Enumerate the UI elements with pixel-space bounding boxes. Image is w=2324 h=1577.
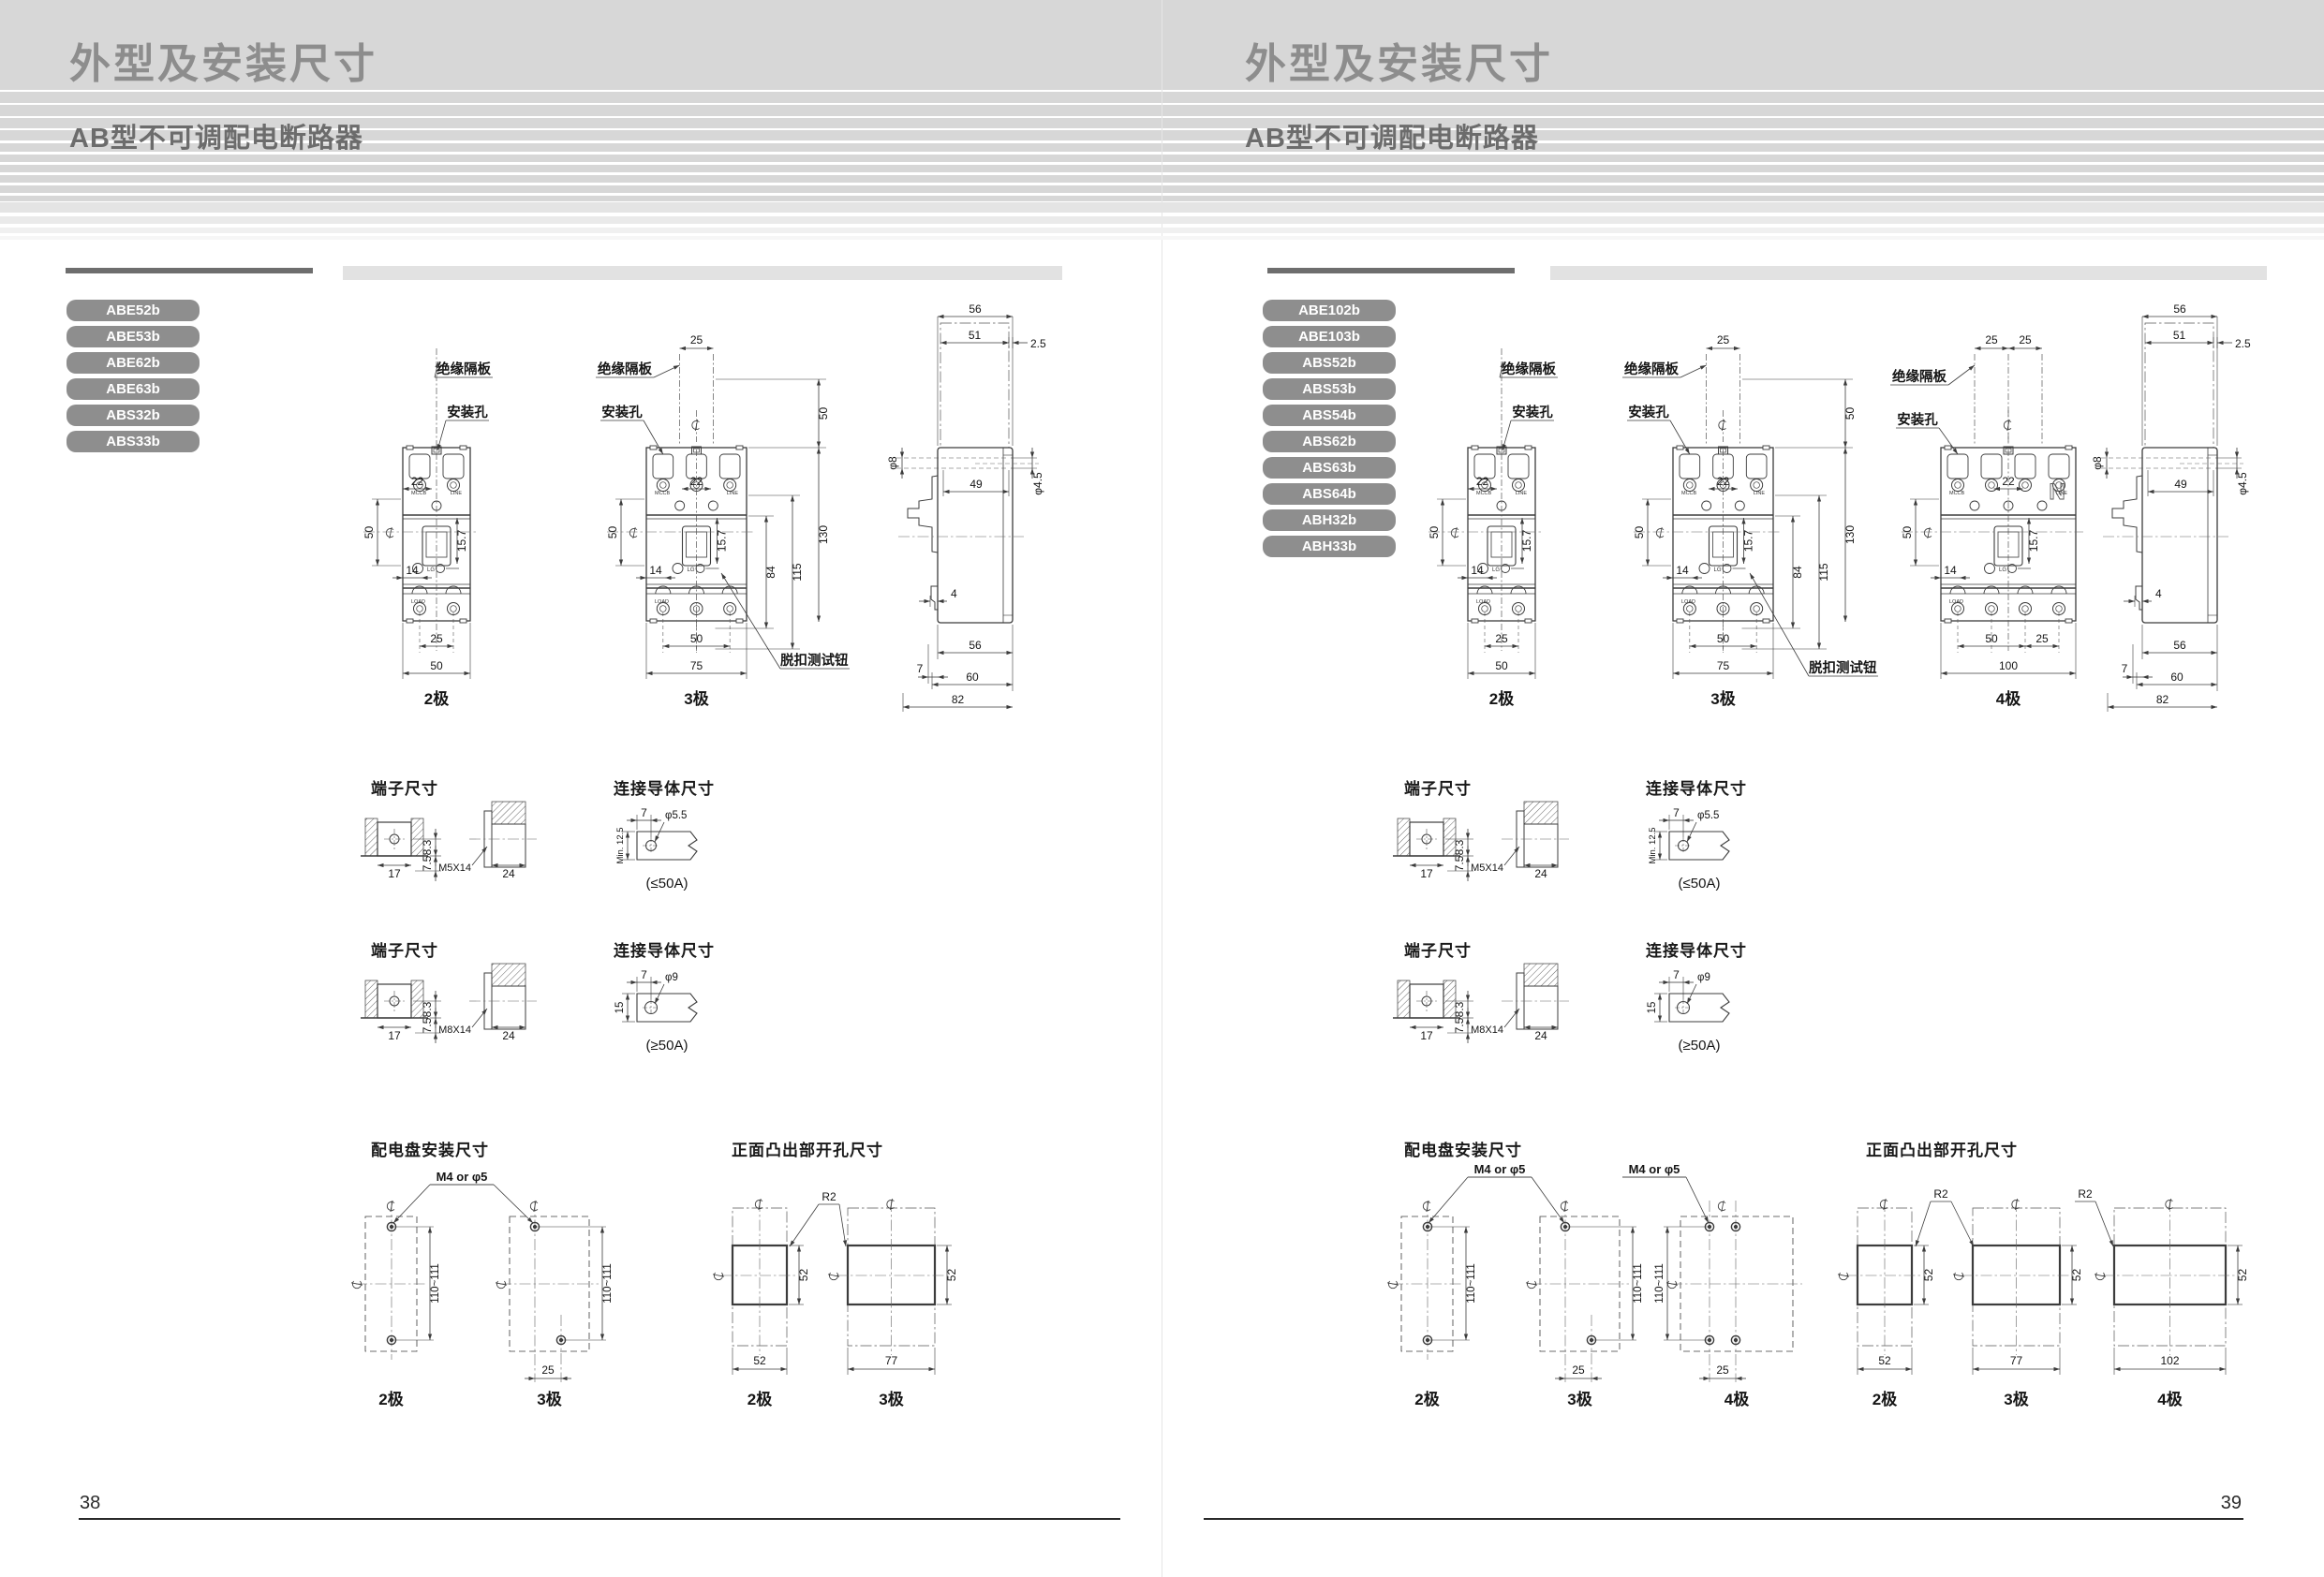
model-badge: ABE102b (1263, 300, 1396, 321)
front-view-3p: MCCBLINELOADLG15.72250142550753极50841151… (1622, 333, 1857, 708)
trip_test-label: 脱扣测试钮 (1809, 659, 1877, 676)
line-label: LINE (1754, 491, 1766, 496)
page-subtitle: AB型不可调配电断路器 (1245, 116, 1539, 155)
model-badge: ABS33b (67, 431, 200, 452)
phi55-label: φ5.5 (665, 810, 687, 821)
t56-label: 56 (969, 302, 982, 316)
phi8-label: φ8 (2091, 456, 2104, 470)
h75-label: 7.5 (421, 855, 434, 871)
b60-label: 60 (966, 671, 979, 684)
d50-label: 50 (1901, 526, 1914, 539)
header-stripe (0, 202, 2324, 213)
terminal-title-2: 端子尺寸 (1404, 937, 1472, 961)
conductor-detail-1: 7φ5.5Min. 12.5(≤50A) (615, 806, 697, 892)
le-label: (≤50A) (1679, 876, 1721, 892)
pole4-label: 4极 (1996, 690, 2021, 708)
conductor-detail-2: 7φ915(≥50A) (614, 968, 697, 1054)
model-badge: ABS32b (67, 405, 200, 426)
m5-label: M5X14 (438, 862, 471, 874)
header-stripe (0, 216, 2324, 224)
r84-label: 84 (764, 566, 777, 579)
d14-label: 14 (406, 564, 419, 577)
mount_hole-label: 安装孔 (601, 404, 643, 420)
d14-label: 14 (649, 564, 662, 577)
page-title: 外型及安装尺寸 (69, 30, 377, 90)
r115-label: 115 (1817, 563, 1830, 581)
r2-label: R2 (2078, 1187, 2093, 1201)
pole3-label: 3极 (879, 1391, 903, 1408)
d24-label: 24 (1534, 867, 1547, 880)
v-label: 110~111 (430, 1263, 441, 1304)
panel-mount-3p: 110~111253极 (496, 1201, 614, 1408)
insulation-label: 绝缘隔板 (598, 361, 652, 377)
terminal-title-2: 端子尺寸 (371, 937, 438, 961)
b50-label: 50 (690, 632, 703, 645)
cutout-2p: 52522极 (713, 1199, 810, 1408)
pole2-label: 2极 (748, 1391, 772, 1408)
d4-label: 4 (2155, 587, 2162, 600)
v-label: 110~111 (1633, 1263, 1644, 1304)
pole4-label: 4极 (2157, 1391, 2182, 1408)
d14-label: 14 (1676, 564, 1689, 577)
pole3-label: 3极 (1567, 1391, 1591, 1408)
mount_hole-label: 安装孔 (1512, 404, 1553, 420)
load-label: LOAD (655, 599, 669, 605)
p25b-label: 25 (2019, 333, 2032, 346)
d7-label: 7 (1673, 968, 1680, 981)
cutout-title: 正面凸出部开孔尺寸 (732, 1137, 883, 1160)
model-badge: ABS54b (1263, 405, 1396, 426)
header-stripe (0, 236, 2324, 240)
b82-label: 82 (952, 693, 965, 706)
cutout-3p: 52773极 (1953, 1199, 2083, 1408)
panel-mount-3p: 110~111253极 (1526, 1201, 1644, 1408)
model-badge: ABH32b (1263, 509, 1396, 531)
pole2-label: 2极 (1489, 690, 1514, 708)
d157-label: 15.7 (716, 529, 729, 552)
terminal-title-1: 端子尺寸 (1404, 775, 1472, 799)
model-badge: ABE52b (67, 300, 200, 321)
r84-label: 84 (1791, 566, 1804, 579)
model-list: ABE102bABE103bABS52bABS53bABS54bABS62bAB… (1263, 300, 1396, 562)
r2-label: R2 (1933, 1187, 1948, 1201)
header-stripe (0, 228, 2324, 233)
conductor-title-1: 连接导体尺寸 (614, 775, 715, 799)
v-label: 110~111 (1654, 1263, 1665, 1304)
front-view-3p: MCCBLINELOADLG15.72250142550753极50841151… (596, 333, 830, 708)
pole2-label: 2极 (1414, 1391, 1439, 1408)
line-label: LINE (2056, 491, 2068, 496)
v-label: 110~111 (602, 1263, 614, 1304)
front-view-2p: MCCBLINELOADLG15.722501425502极绝缘隔板安装孔 (363, 348, 493, 708)
m5-label: M5X14 (1471, 862, 1503, 874)
w75-label: 75 (690, 659, 703, 672)
b82-label: 82 (2156, 693, 2169, 706)
model-badge: ABH33b (1263, 536, 1396, 557)
b50b-label: 50 (1985, 632, 1998, 645)
h52-label: 52 (2070, 1269, 2083, 1282)
pole3-label: 3极 (1710, 690, 1735, 708)
d50-label: 50 (606, 526, 619, 539)
mccb-label: MCCB (1476, 491, 1492, 496)
d157-label: 15.7 (455, 529, 468, 552)
d14-label: 14 (1944, 564, 1957, 577)
page-subtitle: AB型不可调配电断路器 (69, 116, 363, 155)
load-label: LOAD (1476, 599, 1490, 605)
m8-label: M8X14 (438, 1024, 471, 1036)
w17-label: 17 (388, 867, 401, 880)
section-band (343, 266, 1062, 280)
phi9-label: φ9 (1697, 972, 1710, 983)
min125-label: Min. 12.5 (615, 827, 626, 863)
conductor-title-2: 连接导体尺寸 (1646, 937, 1747, 961)
pole2-label: 2极 (378, 1391, 403, 1408)
d49-label: 49 (970, 478, 983, 491)
r2-label: R2 (822, 1190, 836, 1203)
d22-label: 22 (1476, 475, 1489, 488)
lg-label: LG (1492, 567, 1500, 573)
mccb-label: MCCB (1949, 491, 1965, 496)
conductor-title-2: 连接导体尺寸 (614, 937, 715, 961)
t25-label: 2.5 (1030, 337, 1046, 350)
terminal-detail-2: 178.37.5M8X1424 (361, 964, 537, 1043)
d7-label: 7 (641, 968, 647, 981)
w77-label: 77 (2010, 1354, 2023, 1367)
panel-mount-2p: 110~1112极 (1387, 1201, 1477, 1408)
load-label: LOAD (1681, 599, 1695, 605)
w52-label: 52 (1878, 1354, 1891, 1367)
d7-label: 7 (1673, 806, 1680, 819)
w52-label: 52 (753, 1354, 766, 1367)
h83-label: 8.3 (421, 839, 434, 855)
terminal-detail-1: 178.37.5M5X1424 (361, 802, 537, 881)
p25-label: 25 (690, 333, 703, 346)
phi45-label: φ4.5 (2236, 472, 2249, 495)
line-label: LINE (727, 491, 739, 496)
b60-label: 60 (2170, 671, 2183, 684)
section-band (1550, 266, 2267, 280)
w17-label: 17 (388, 1029, 401, 1042)
trip_test-label: 脱扣测试钮 (780, 652, 849, 669)
model-badge: ABE103b (1263, 326, 1396, 347)
w77-label: 77 (885, 1354, 898, 1367)
conductor-detail-1: 7φ5.5Min. 12.5(≤50A) (1648, 806, 1729, 892)
model-badge: ABS62b (1263, 431, 1396, 452)
conductor-detail-2: 7φ915(≥50A) (1647, 968, 1729, 1054)
terminal-detail-1: 178.37.5M5X1424 (1393, 802, 1569, 881)
load-label: LOAD (1949, 599, 1963, 605)
insulation-label: 绝缘隔板 (1624, 361, 1679, 377)
panel-mount-2p: 110~1112极 (351, 1201, 441, 1408)
d25-label: 25 (1572, 1363, 1585, 1377)
h75-label: 7.5 (1453, 1017, 1466, 1033)
d24-label: 24 (1534, 1029, 1547, 1042)
panel-mount-title: 配电盘安装尺寸 (1404, 1137, 1522, 1160)
h75-label: 7.5 (1453, 855, 1466, 871)
model-badge: ABS52b (1263, 352, 1396, 374)
page-title: 外型及安装尺寸 (1245, 30, 1553, 90)
d22-label: 22 (1717, 475, 1730, 488)
lg-label: LG (1999, 567, 2006, 573)
d15-label: 15 (1647, 1002, 1658, 1014)
d49-label: 49 (2174, 478, 2187, 491)
front-view-2p: MCCBLINELOADLG15.722501425502极绝缘隔板安装孔 (1428, 348, 1558, 708)
insulation-label: 绝缘隔板 (1892, 368, 1947, 385)
catalog-spread: 外型及安装尺寸 AB型不可调配电断路器 ABE52bABE53bABE62bAB… (0, 0, 2324, 1577)
cutout-2p: 52522极 (1838, 1199, 1935, 1408)
phi55-label: φ5.5 (1697, 810, 1719, 821)
d14-label: 14 (1471, 564, 1484, 577)
m8-label: M8X14 (1471, 1024, 1503, 1036)
insulation-label: 绝缘隔板 (437, 361, 491, 377)
h83-label: 8.3 (1453, 1001, 1466, 1017)
d15-label: 15 (614, 1002, 626, 1014)
min125-label: Min. 12.5 (1648, 827, 1658, 863)
front-view-4p: MCCBLINELOADLG15.72250142525N50251004极绝缘… (1890, 333, 2083, 708)
line-label: LINE (1516, 491, 1528, 496)
t56-label: 56 (2173, 302, 2186, 316)
pole2-label: 2极 (1873, 1391, 1897, 1408)
phi8-label: φ8 (886, 456, 899, 470)
v-label: 110~111 (1466, 1263, 1477, 1304)
pole4-label: 4极 (1724, 1391, 1749, 1408)
cutout-4p: 521024极 (2095, 1199, 2249, 1408)
d50-label: 50 (1428, 526, 1441, 539)
side-view: 56512.5φ849φ4.545676082 (2091, 302, 2251, 712)
side-view: 56512.5φ849φ4.545676082 (886, 302, 1046, 712)
pole2-label: 2极 (424, 690, 449, 708)
d50-label: 50 (1633, 526, 1646, 539)
mccb-label: MCCB (411, 491, 427, 496)
b25-label: 25 (430, 632, 443, 645)
b25-label: 25 (1495, 632, 1508, 645)
phi9-label: φ9 (665, 972, 678, 983)
model-badge: ABS53b (1263, 378, 1396, 400)
terminal-detail-2: 178.37.5M8X1424 (1393, 964, 1569, 1043)
p25-label: 25 (1717, 333, 1730, 346)
cutout-3p: 52773极 (828, 1199, 958, 1408)
b7-label: 7 (2122, 662, 2128, 675)
footer-rule (1204, 1518, 2243, 1520)
d22-label: 22 (411, 475, 424, 488)
d157-label: 15.7 (2027, 529, 2040, 552)
panel-mount-title: 配电盘安装尺寸 (371, 1137, 489, 1160)
h52-label: 52 (1922, 1269, 1935, 1282)
b50-label: 50 (1717, 632, 1730, 645)
model-badge: ABE53b (67, 326, 200, 347)
lg-label: LG (427, 567, 435, 573)
page-number: 39 (2221, 1493, 2242, 1514)
model-badge: ABS63b (1263, 457, 1396, 479)
mount_hole-label: 安装孔 (447, 404, 488, 420)
mount_hole-label: 安装孔 (1897, 411, 1938, 428)
h52-label: 52 (945, 1269, 958, 1282)
w50-label: 50 (1495, 659, 1508, 672)
w75-label: 75 (1717, 659, 1730, 672)
w102-label: 102 (2160, 1354, 2179, 1367)
lg-label: LG (1714, 567, 1722, 573)
r50-label: 50 (1843, 407, 1857, 420)
model-badge: ABE62b (67, 352, 200, 374)
b56-label: 56 (969, 639, 982, 652)
ge-label: (≥50A) (1679, 1038, 1721, 1054)
panel-mount-4p: 110~111254极 (1654, 1201, 1802, 1408)
m4-label: M4 or φ5 (1474, 1162, 1526, 1176)
d157-label: 15.7 (1742, 529, 1755, 552)
d22-label: 22 (2002, 475, 2015, 488)
line-label: LINE (451, 491, 463, 496)
w17-label: 17 (1420, 867, 1433, 880)
insulation-label: 绝缘隔板 (1502, 361, 1556, 377)
m4-label: M4 or φ5 (1629, 1162, 1680, 1176)
d24-label: 24 (502, 867, 515, 880)
w100-label: 100 (1999, 659, 2018, 672)
d25-label: 25 (541, 1363, 555, 1377)
n-label: N (2049, 479, 2065, 505)
page-number: 38 (80, 1493, 100, 1514)
r50-label: 50 (817, 407, 830, 420)
r130-label: 130 (1843, 525, 1857, 544)
phi45-label: φ4.5 (1031, 472, 1044, 495)
b7-label: 7 (917, 662, 924, 675)
section-rule (66, 268, 313, 273)
b25b-label: 25 (2035, 632, 2049, 645)
model-badge: ABE63b (67, 378, 200, 400)
pole3-label: 3极 (537, 1391, 561, 1408)
d7-label: 7 (641, 806, 647, 819)
lg-label: LG (688, 567, 695, 573)
cutout-title: 正面凸出部开孔尺寸 (1866, 1137, 2018, 1160)
load-label: LOAD (411, 599, 425, 605)
d4-label: 4 (951, 587, 957, 600)
pole3-label: 3极 (684, 690, 708, 708)
w50-label: 50 (430, 659, 443, 672)
pole3-label: 3极 (2004, 1391, 2028, 1408)
t51-label: 51 (969, 329, 982, 342)
h75-label: 7.5 (421, 1017, 434, 1033)
d25-label: 25 (1716, 1363, 1729, 1377)
t25-label: 2.5 (2235, 337, 2251, 350)
mccb-label: MCCB (1681, 491, 1697, 496)
t51-label: 51 (2173, 329, 2186, 342)
r130-label: 130 (817, 525, 830, 544)
conductor-title-1: 连接导体尺寸 (1646, 775, 1747, 799)
b56-label: 56 (2173, 639, 2186, 652)
h83-label: 8.3 (1453, 839, 1466, 855)
le-label: (≤50A) (646, 876, 688, 892)
d50-label: 50 (363, 526, 376, 539)
m4-label: M4 or φ5 (437, 1170, 488, 1184)
h83-label: 8.3 (421, 1001, 434, 1017)
d24-label: 24 (502, 1029, 515, 1042)
d22-label: 22 (690, 475, 703, 488)
ge-label: (≥50A) (646, 1038, 688, 1054)
p25-label: 25 (1985, 333, 1998, 346)
h52-label: 52 (2236, 1269, 2249, 1282)
model-badge: ABS64b (1263, 483, 1396, 505)
terminal-title-1: 端子尺寸 (371, 775, 438, 799)
footer-rule (79, 1518, 1120, 1520)
w17-label: 17 (1420, 1029, 1433, 1042)
section-rule (1267, 268, 1515, 273)
model-list: ABE52bABE53bABE62bABE63bABS32bABS33b (67, 300, 200, 457)
r115-label: 115 (791, 563, 804, 581)
h52-label: 52 (797, 1269, 810, 1282)
mccb-label: MCCB (655, 491, 671, 496)
d157-label: 15.7 (1520, 529, 1533, 552)
mount_hole-label: 安装孔 (1628, 404, 1669, 420)
